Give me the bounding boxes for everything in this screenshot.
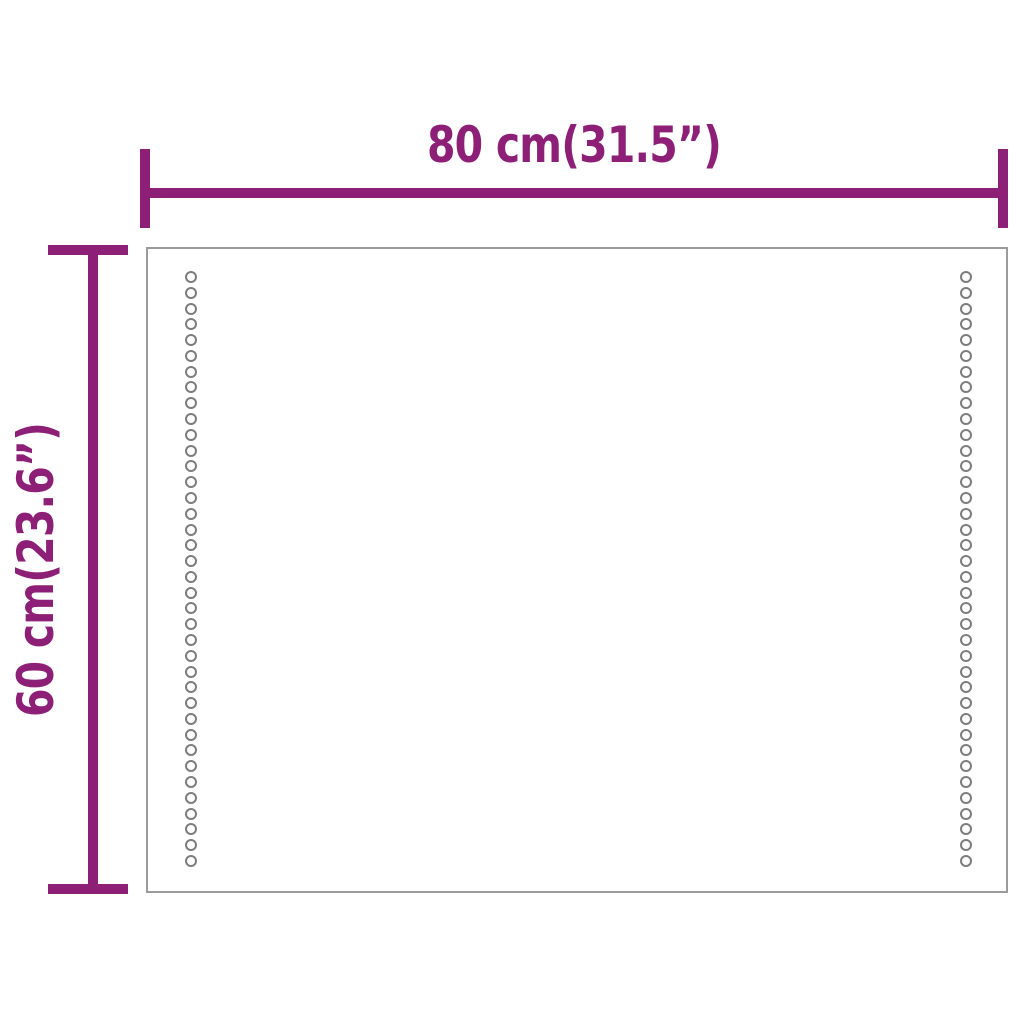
led-dot — [960, 602, 972, 614]
led-dot — [185, 303, 197, 315]
height-dimension-bottom-tick — [48, 884, 128, 894]
led-dot — [960, 681, 972, 693]
led-dot — [960, 303, 972, 315]
led-dot — [960, 697, 972, 709]
led-dot — [185, 823, 197, 835]
led-dot — [185, 839, 197, 851]
width-dimension-right-tick — [998, 149, 1008, 228]
led-dot — [185, 713, 197, 725]
led-dot — [960, 492, 972, 504]
led-dot — [960, 445, 972, 457]
led-dot — [960, 713, 972, 725]
led-dot — [185, 855, 197, 867]
led-dot — [185, 776, 197, 788]
led-dot — [185, 681, 197, 693]
led-dot — [185, 744, 197, 756]
led-dot — [960, 729, 972, 741]
led-dot — [960, 318, 972, 330]
led-dot — [185, 634, 197, 646]
width-dimension-line — [145, 188, 1003, 198]
led-dot — [960, 271, 972, 283]
led-dot — [960, 287, 972, 299]
led-dot — [185, 729, 197, 741]
led-dot — [960, 413, 972, 425]
led-dot — [185, 492, 197, 504]
led-dot-column-right — [960, 271, 972, 867]
led-dot — [185, 445, 197, 457]
led-dot — [960, 792, 972, 804]
led-dot — [185, 697, 197, 709]
led-dot — [185, 524, 197, 536]
led-dot — [960, 634, 972, 646]
led-dot — [960, 350, 972, 362]
led-dot — [960, 429, 972, 441]
led-dot — [960, 524, 972, 536]
led-dot — [960, 460, 972, 472]
led-dot — [185, 334, 197, 346]
led-dot — [960, 823, 972, 835]
led-dot-column-left — [185, 271, 197, 867]
led-dot — [960, 555, 972, 567]
led-dot — [960, 397, 972, 409]
height-dimension-line — [88, 250, 98, 887]
led-dot — [185, 792, 197, 804]
width-dimension-label: 80 cm(31.5”) — [222, 116, 926, 174]
led-dot — [185, 350, 197, 362]
led-dot — [960, 839, 972, 851]
led-dot — [185, 429, 197, 441]
led-dot — [960, 508, 972, 520]
led-dot — [185, 366, 197, 378]
led-dot — [960, 381, 972, 393]
led-dot — [960, 587, 972, 599]
led-dot — [185, 539, 197, 551]
led-dot — [185, 587, 197, 599]
led-dot — [960, 808, 972, 820]
led-dot — [185, 808, 197, 820]
led-dot — [960, 776, 972, 788]
led-dot — [185, 413, 197, 425]
led-dot — [185, 460, 197, 472]
led-dot — [185, 271, 197, 283]
led-dot — [960, 539, 972, 551]
led-dot — [185, 381, 197, 393]
height-dimension-label-text: 60 cm(23.6”) — [7, 423, 65, 717]
led-dot — [960, 334, 972, 346]
led-dot — [185, 666, 197, 678]
led-dot — [960, 855, 972, 867]
led-dot — [185, 476, 197, 488]
led-dot — [185, 397, 197, 409]
led-dot — [960, 618, 972, 630]
led-dot — [185, 287, 197, 299]
mirror-panel — [146, 247, 1008, 893]
led-dot — [960, 744, 972, 756]
led-dot — [960, 366, 972, 378]
led-dot — [185, 555, 197, 567]
led-dot — [960, 476, 972, 488]
led-dot — [960, 650, 972, 662]
led-dot — [185, 618, 197, 630]
led-dot — [185, 650, 197, 662]
led-dot — [960, 666, 972, 678]
led-dot — [960, 571, 972, 583]
led-dot — [960, 760, 972, 772]
led-dot — [185, 318, 197, 330]
led-dot — [185, 602, 197, 614]
led-dot — [185, 760, 197, 772]
led-dot — [185, 508, 197, 520]
led-dot — [185, 571, 197, 583]
mirror-dimension-diagram: 80 cm(31.5”) 60 cm(23.6”) — [0, 0, 1024, 1024]
